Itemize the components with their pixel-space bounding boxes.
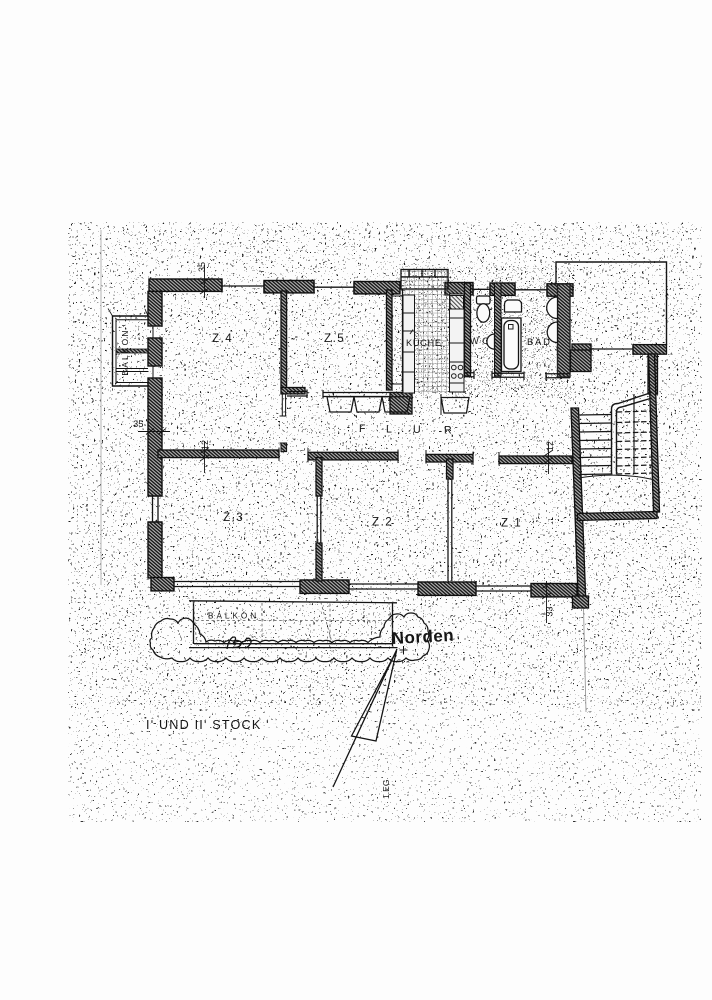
svg-text:1.EG: 1.EG — [381, 779, 391, 799]
svg-text:12: 12 — [545, 441, 555, 451]
svg-text:Z.5: Z.5 — [324, 332, 345, 345]
svg-text:33: 33 — [545, 606, 555, 616]
svg-text:35: 35 — [197, 262, 207, 272]
svg-text:Iʹ UND IIʹ STOCK ʹ: Iʹ UND IIʹ STOCK ʹ — [146, 718, 270, 732]
svg-text:Z.3: Z.3 — [223, 511, 244, 524]
svg-text:Z.2: Z.2 — [372, 516, 393, 529]
svg-text:35: 35 — [133, 418, 143, 429]
svg-text:R: R — [444, 425, 452, 437]
svg-text:BALKON: BALKON — [120, 328, 130, 375]
svg-text:BALKON: BALKON — [208, 612, 259, 621]
svg-text:L: L — [386, 424, 392, 436]
svg-text:Z.4: Z.4 — [212, 332, 233, 345]
svg-text:Norden: Norden — [391, 626, 454, 648]
svg-text:KÜCHE: KÜCHE — [406, 338, 442, 348]
svg-text:12: 12 — [200, 440, 210, 450]
svg-text:Z.1: Z.1 — [501, 517, 522, 530]
svg-text:F: F — [359, 423, 366, 435]
svg-text:U: U — [413, 424, 421, 436]
